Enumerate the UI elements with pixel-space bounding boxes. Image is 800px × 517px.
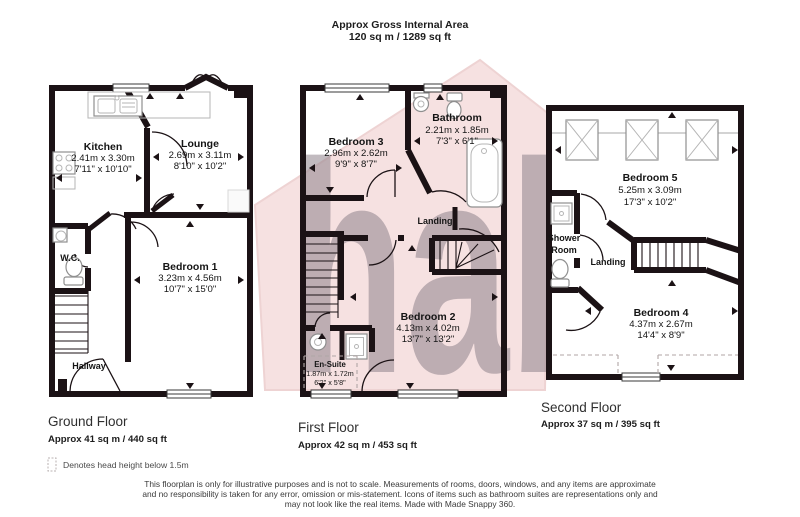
wc-label: W.C. xyxy=(60,253,80,263)
kitchen-window xyxy=(113,84,149,92)
hallway-label: Hallway xyxy=(72,361,106,371)
shower-room-label-1: Shower xyxy=(548,233,581,243)
floorplan-page: habi Approx Gross Internal Area 120 sq m… xyxy=(0,0,800,517)
corner-block xyxy=(234,85,250,98)
lounge-imperial: 8'10" x 10'2" xyxy=(174,161,227,172)
bathroom-imperial: 7'3" x 6'1" xyxy=(436,136,478,147)
kitchen-metric: 2.41m x 3.30m xyxy=(71,153,134,164)
bathtub-icon xyxy=(467,139,502,207)
skylight-icon xyxy=(686,120,718,160)
bedroom5-metric: 5.25m x 3.09m xyxy=(618,185,681,196)
ground-floor-area: Approx 41 sq m / 440 sq ft xyxy=(48,434,168,445)
bathroom-metric: 2.21m x 1.85m xyxy=(425,125,488,136)
bedroom1-metric: 3.23m x 4.56m xyxy=(158,273,221,284)
ensuite-window xyxy=(311,390,351,398)
shower-tray-icon xyxy=(551,203,572,224)
ground-floor-caption: Ground Floor xyxy=(48,414,128,429)
bedroom2-label: Bedroom 2 xyxy=(401,311,456,323)
ensuite-shower-icon xyxy=(346,334,367,359)
head-height-legend: Denotes head height below 1.5m xyxy=(48,458,189,471)
bedroom2-imperial: 13'7" x 13'2" xyxy=(402,334,455,345)
shower-room-label-2: Room xyxy=(551,245,577,255)
lounge-label: Lounge xyxy=(181,138,219,150)
corner-block xyxy=(490,85,504,98)
landing-label: Landing xyxy=(418,216,453,226)
ensuite-metric: 1.87m x 1.72m xyxy=(306,369,354,378)
first-floor-area: Approx 42 sq m / 453 sq ft xyxy=(298,440,418,451)
bedroom4-metric: 4.37m x 2.67m xyxy=(629,319,692,330)
bedroom2-metric: 4.13m x 4.02m xyxy=(396,323,459,334)
kitchen-label: Kitchen xyxy=(84,141,123,153)
bathroom-sink-icon xyxy=(414,93,430,112)
bathroom-label: Bathroom xyxy=(432,112,482,124)
disclaimer-line-1: This floorplan is only for illustrative … xyxy=(144,479,656,489)
bedroom1-imperial: 10'7" x 15'0" xyxy=(164,284,217,295)
bedroom3-label: Bedroom 3 xyxy=(329,136,384,148)
bedroom5-label: Bedroom 5 xyxy=(623,172,678,184)
gross-area-value: 120 sq m / 1289 sq ft xyxy=(349,31,452,43)
bedroom2-window xyxy=(398,390,458,398)
skylight-icon xyxy=(626,120,658,160)
disclaimer-line-2: and no responsibility is taken for any e… xyxy=(142,489,658,499)
head-height-legend-text: Denotes head height below 1.5m xyxy=(63,460,189,470)
gross-area-title: Approx Gross Internal Area xyxy=(332,19,469,31)
head-height-legend-icon xyxy=(48,458,56,471)
bedroom3-window xyxy=(325,84,389,92)
skylight-icon xyxy=(566,120,598,160)
bedroom1-window xyxy=(167,390,211,398)
ensuite-imperial: 6'2" x 5'8" xyxy=(314,378,346,387)
bathroom-window xyxy=(424,84,442,92)
bedroom4-label: Bedroom 4 xyxy=(634,307,689,319)
first-floor-caption: First Floor xyxy=(298,420,359,435)
second-floor-caption: Second Floor xyxy=(541,400,622,415)
bedroom5-imperial: 17'3" x 10'2" xyxy=(624,197,677,208)
hall-door-post xyxy=(58,379,67,395)
bedroom3-metric: 2.96m x 2.62m xyxy=(324,148,387,159)
toilet-icon xyxy=(551,260,569,288)
bedroom3-imperial: 9'9" x 8'7" xyxy=(335,159,377,170)
bedroom4-window xyxy=(622,373,660,381)
ground-floor-fill xyxy=(55,91,247,391)
second-floor-area: Approx 37 sq m / 395 sq ft xyxy=(541,419,661,430)
disclaimer-line-3: may not look like the real items. Made w… xyxy=(285,499,515,509)
fireplace-icon xyxy=(228,190,249,212)
ground-floor-plan: Kitchen 2.41m x 3.30m 7'11" x 10'10" Lou… xyxy=(52,75,250,398)
lounge-metric: 2.69m x 3.11m xyxy=(169,150,232,161)
bedroom4-imperial: 14'4" x 8'9" xyxy=(637,330,684,341)
bedroom1-label: Bedroom 1 xyxy=(163,261,218,273)
floorplan-svg: habi Approx Gross Internal Area 120 sq m… xyxy=(0,0,800,517)
second-floor-plan: Bedroom 5 5.25m x 3.09m 17'3" x 10'2" Sh… xyxy=(548,105,741,381)
ensuite-label: En-Suite xyxy=(314,360,346,369)
landing-label: Landing xyxy=(591,257,626,267)
kitchen-imperial: 7'11" x 10'10" xyxy=(74,164,131,175)
wc-sink-icon xyxy=(53,228,67,242)
